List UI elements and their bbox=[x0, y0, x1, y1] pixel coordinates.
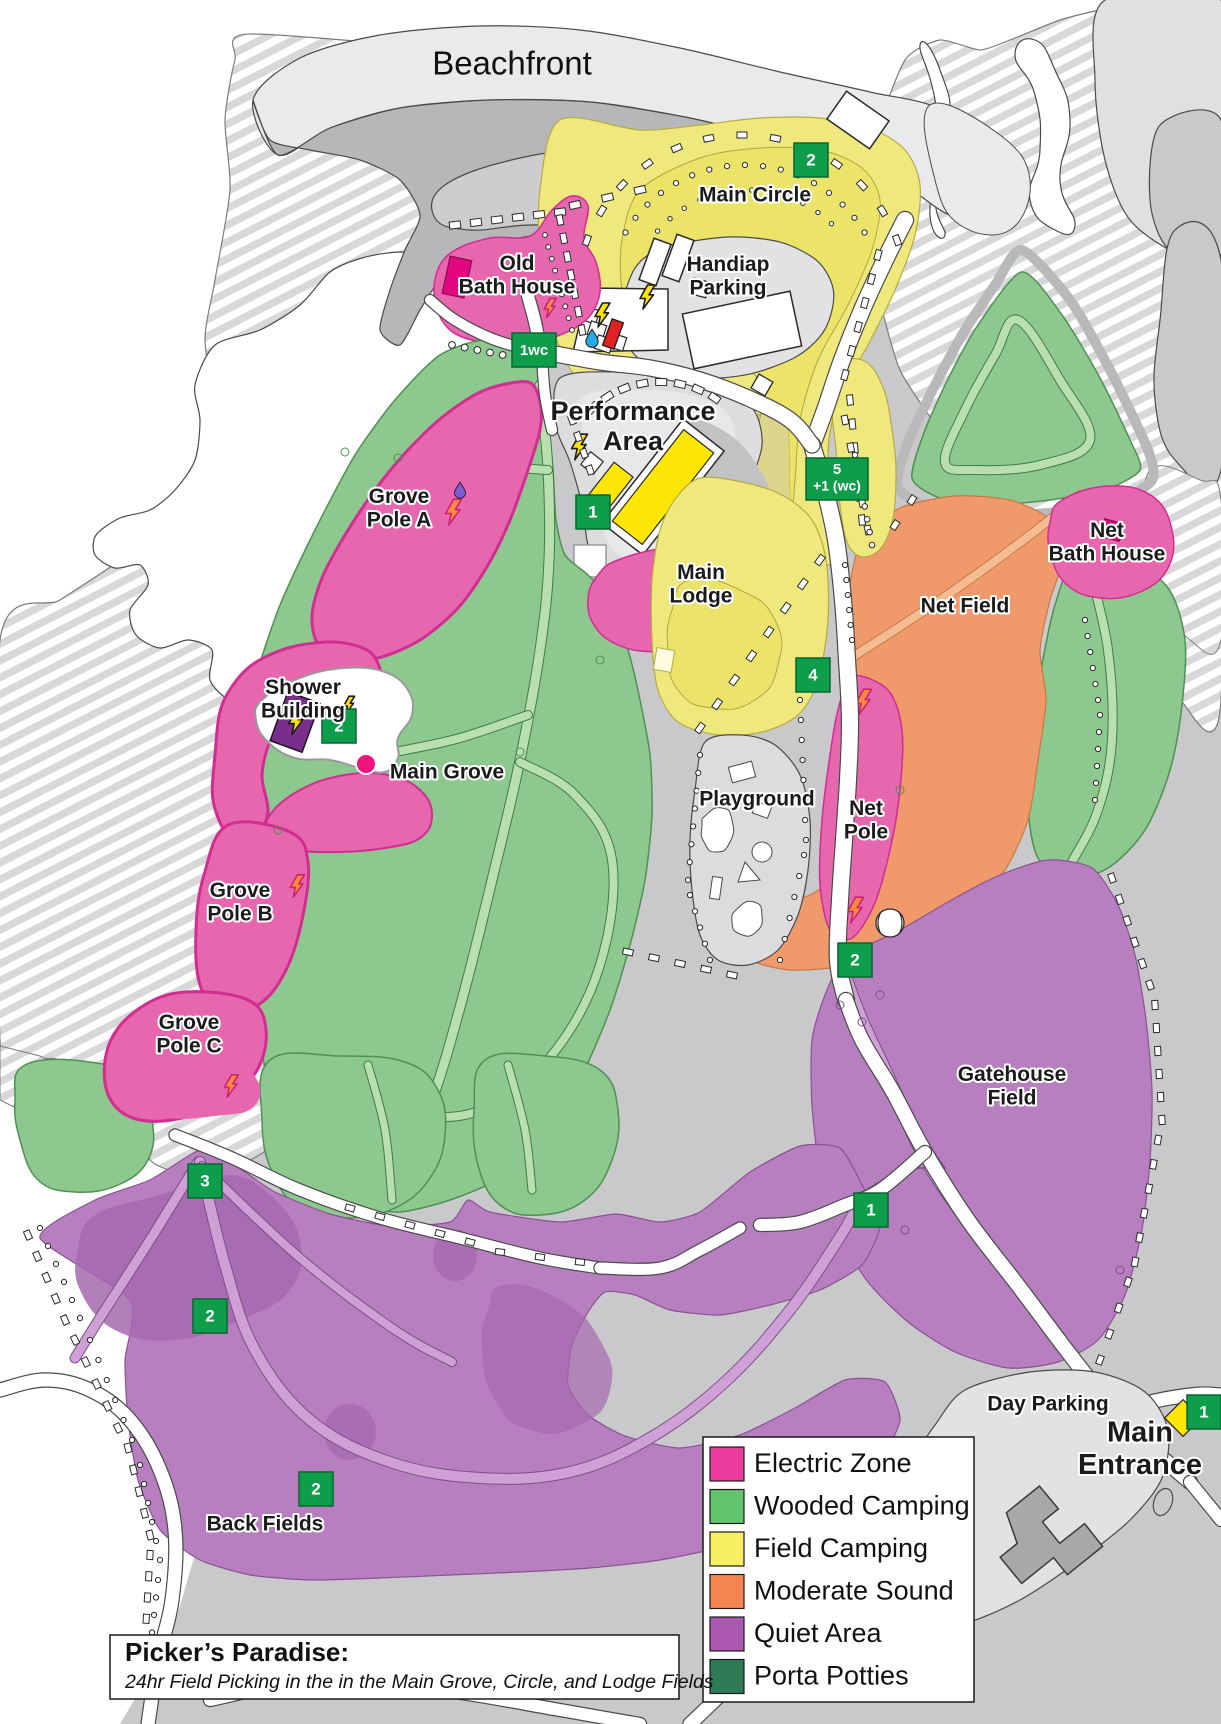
svg-text:1wc: 1wc bbox=[520, 342, 548, 359]
svg-text:4: 4 bbox=[808, 665, 818, 684]
svg-text:Back Fields: Back Fields bbox=[207, 1513, 324, 1536]
svg-text:Pole A: Pole A bbox=[367, 508, 432, 531]
svg-text:1: 1 bbox=[1199, 1402, 1208, 1421]
svg-text:Field: Field bbox=[987, 1086, 1036, 1109]
svg-text:Grove: Grove bbox=[159, 1011, 220, 1034]
svg-text:Pole: Pole bbox=[844, 820, 888, 843]
svg-text:Main Circle: Main Circle bbox=[699, 184, 811, 207]
svg-text:Grove: Grove bbox=[369, 485, 430, 508]
svg-text:Pole C: Pole C bbox=[156, 1034, 221, 1057]
svg-text:Handiap: Handiap bbox=[687, 253, 770, 276]
svg-text:Lodge: Lodge bbox=[670, 584, 733, 607]
svg-text:Moderate Sound: Moderate Sound bbox=[754, 1576, 954, 1606]
svg-text:5: 5 bbox=[833, 461, 841, 478]
svg-text:Building: Building bbox=[261, 699, 345, 722]
svg-text:Old: Old bbox=[500, 252, 535, 275]
svg-text:2: 2 bbox=[205, 1306, 214, 1325]
svg-text:+1 (wc): +1 (wc) bbox=[813, 478, 861, 494]
svg-text:Performance: Performance bbox=[550, 396, 715, 426]
svg-text:Porta Potties: Porta Potties bbox=[754, 1661, 909, 1691]
svg-text:Bath House: Bath House bbox=[1049, 542, 1166, 565]
svg-text:Playground: Playground bbox=[699, 788, 815, 811]
svg-text:Pole B: Pole B bbox=[207, 902, 272, 925]
svg-text:Shower: Shower bbox=[265, 676, 341, 699]
svg-text:Net: Net bbox=[1090, 519, 1124, 542]
svg-text:3: 3 bbox=[200, 1171, 209, 1190]
svg-text:Main: Main bbox=[677, 561, 725, 584]
svg-text:Parking: Parking bbox=[689, 276, 766, 299]
svg-text:Net: Net bbox=[849, 797, 883, 820]
svg-text:2: 2 bbox=[311, 1479, 320, 1498]
svg-text:Wooded Camping: Wooded Camping bbox=[754, 1491, 970, 1521]
svg-text:Field Camping: Field Camping bbox=[754, 1533, 928, 1563]
svg-text:Electric Zone: Electric Zone bbox=[754, 1448, 912, 1478]
svg-text:Bath House: Bath House bbox=[459, 275, 576, 298]
svg-text:1: 1 bbox=[866, 1200, 875, 1219]
svg-text:Day Parking: Day Parking bbox=[987, 1393, 1108, 1416]
svg-text:Main Grove: Main Grove bbox=[390, 761, 504, 784]
svg-text:Picker’s Paradise:: Picker’s Paradise: bbox=[125, 1637, 349, 1667]
svg-text:Quiet Area: Quiet Area bbox=[754, 1618, 883, 1648]
svg-text:Main: Main bbox=[1107, 1416, 1173, 1448]
svg-text:Gatehouse: Gatehouse bbox=[958, 1063, 1067, 1086]
svg-text:2: 2 bbox=[806, 150, 815, 169]
svg-text:2: 2 bbox=[850, 950, 859, 969]
svg-text:24hr Field Picking in the in t: 24hr Field Picking in the in the Main Gr… bbox=[124, 1671, 714, 1693]
svg-text:Entrance: Entrance bbox=[1078, 1449, 1202, 1481]
svg-text:1: 1 bbox=[588, 502, 597, 521]
svg-text:Beachfront: Beachfront bbox=[432, 45, 592, 82]
svg-text:Area: Area bbox=[603, 426, 664, 456]
svg-text:Net Field: Net Field bbox=[921, 595, 1010, 618]
svg-text:Grove: Grove bbox=[210, 879, 271, 902]
